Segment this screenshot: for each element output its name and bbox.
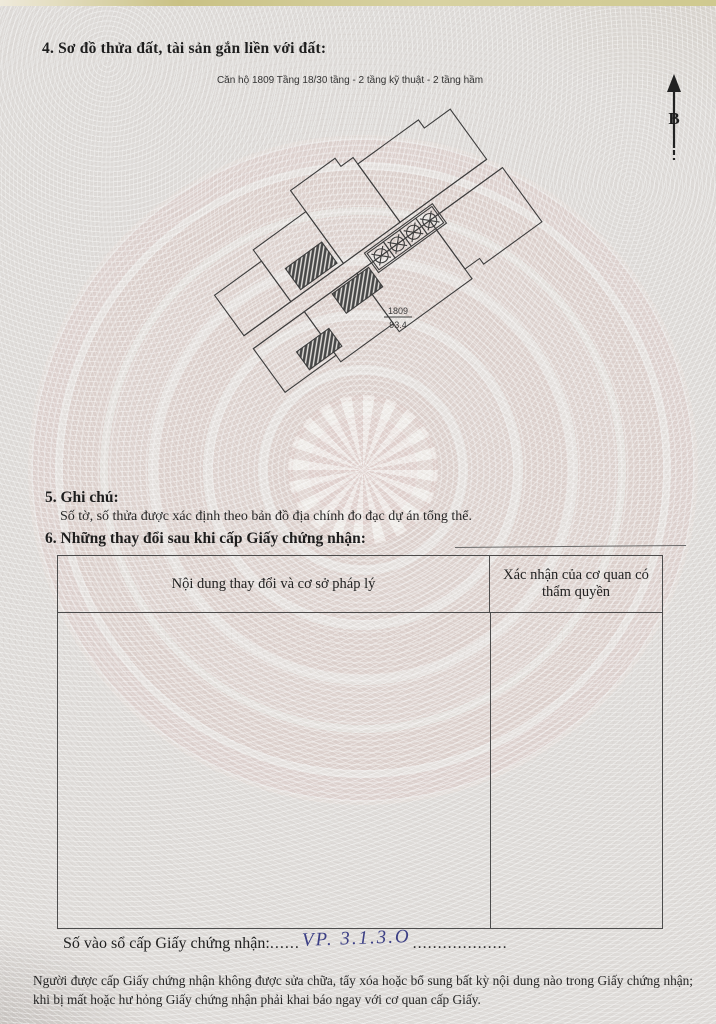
changes-table: Nội dung thay đổi và cơ sở pháp lý Xác n…	[57, 555, 663, 929]
floor-plan: 1809 93.4	[198, 104, 546, 396]
plan-caption: Căn hộ 1809 Tầng 18/30 tầng - 2 tầng kỹ …	[180, 75, 520, 86]
registry-number-handwritten: VP. 3.1.3.O	[300, 926, 413, 952]
unit-area: 93.4	[389, 320, 407, 330]
north-arrow: B	[652, 72, 696, 166]
table-cell-content	[58, 613, 491, 928]
table-header-row: Nội dung thay đổi và cơ sở pháp lý Xác n…	[58, 556, 662, 613]
registry-dots-right: ...................	[413, 935, 508, 952]
elevator-bank	[364, 204, 446, 273]
heading-rule	[455, 545, 686, 548]
registry-number-line: Số vào sổ cấp Giấy chứng nhận:......VP. …	[63, 932, 508, 954]
wing-stair-hatch	[297, 328, 342, 369]
section6-heading: 6. Những thay đổi sau khi cấp Giấy chứng…	[45, 530, 366, 548]
table-header-content: Nội dung thay đổi và cơ sở pháp lý	[58, 556, 490, 612]
table-body-row	[58, 613, 662, 928]
photo-edge-strip	[0, 0, 716, 6]
unit-label: 1809 93.4	[384, 306, 412, 330]
north-arrowhead	[667, 74, 681, 92]
north-label: B	[668, 109, 679, 128]
footer-note: Người được cấp Giấy chứng nhận không đượ…	[33, 971, 693, 1010]
table-cell-confirm	[491, 613, 662, 928]
document-content: 4. Sơ đồ thửa đất, tài sản gắn liền với …	[0, 0, 716, 1024]
stair-core-hatch	[285, 242, 337, 289]
section4-heading: 4. Sơ đồ thửa đất, tài sản gắn liền với …	[42, 40, 326, 58]
section5-note: Số tờ, số thửa được xác định theo bản đồ…	[60, 509, 472, 525]
registry-label: Số vào sổ cấp Giấy chứng nhận:	[63, 935, 270, 952]
unit-number: 1809	[388, 306, 408, 316]
registry-dots-left: ......	[270, 935, 300, 952]
table-header-confirm: Xác nhận của cơ quan có thẩm quyền	[490, 556, 662, 612]
certificate-page: 4. Sơ đồ thửa đất, tài sản gắn liền với …	[0, 0, 716, 1024]
section5-heading: 5. Ghi chú:	[45, 489, 119, 507]
building-outline	[198, 104, 545, 396]
